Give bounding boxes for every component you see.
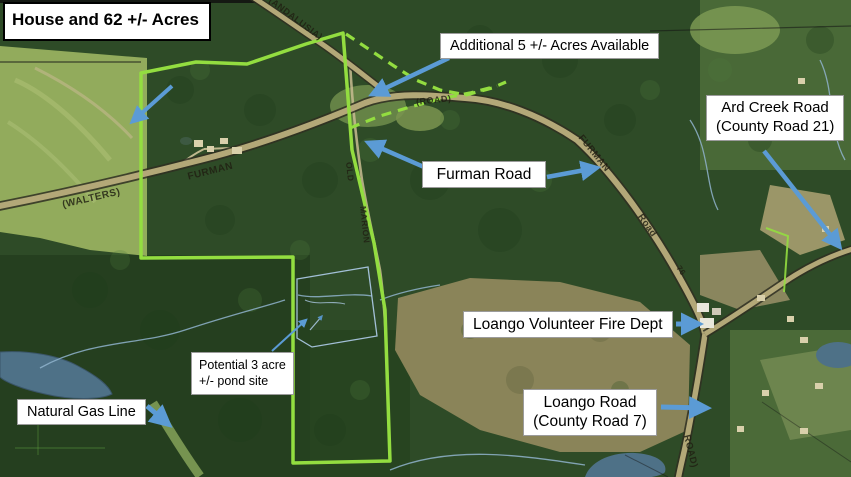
callout-ard-creek-road: Ard Creek Road (County Road 21): [706, 95, 844, 141]
callout-loango-line-2: (County Road 7): [533, 412, 647, 431]
forest-dark-panhandle: [300, 330, 410, 477]
callout-pond-site: Potential 3 acre +/- pond site: [191, 352, 294, 395]
road-label-old: OLD: [344, 161, 356, 181]
callout-loango-road: Loango Road (County Road 7): [523, 389, 657, 436]
title-line-2: 62 +/- Acres: [104, 10, 199, 29]
loango-road-arrow: [661, 407, 706, 408]
callout-gas-line: Natural Gas Line: [17, 399, 146, 425]
callout-ard-creek-line-2: (County Road 21): [716, 118, 834, 137]
callout-pond-site-line-1: Potential 3 acre: [199, 357, 286, 373]
title-box: House and 62 +/- Acres: [3, 2, 211, 41]
callout-furman-road-text: Furman Road: [437, 166, 532, 183]
callout-furman-road: Furman Road: [422, 161, 546, 188]
callout-ard-creek-line-1: Ard Creek Road: [716, 99, 834, 118]
pond-house: [180, 137, 192, 145]
callout-fire-dept-text: Loango Volunteer Fire Dept: [473, 316, 663, 333]
callout-pond-site-line-2: +/- pond site: [199, 373, 286, 389]
listing-map: (WALTERS) FURMAN (ROAD) (ANDALUSIA) FURM…: [0, 0, 851, 477]
callout-additional-acres: Additional 5 +/- Acres Available: [440, 33, 659, 59]
callout-gas-line-text: Natural Gas Line: [27, 404, 136, 420]
callout-loango-line-1: Loango Road: [533, 393, 647, 412]
callout-fire-dept: Loango Volunteer Fire Dept: [463, 311, 673, 338]
callout-additional-acres-text: Additional 5 +/- Acres Available: [450, 38, 649, 54]
title-line-1: House and: [12, 10, 99, 29]
